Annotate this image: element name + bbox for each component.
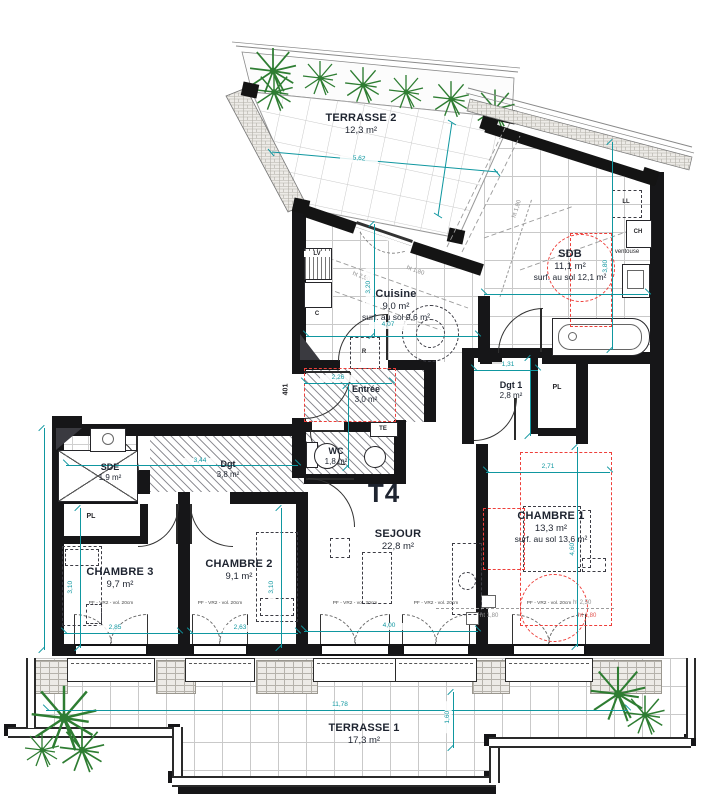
room-name: SEJOUR	[348, 528, 448, 541]
window-sill	[185, 658, 255, 682]
dim-line	[577, 447, 578, 647]
height-label: ht 1,80	[578, 613, 596, 619]
parapet-wall	[172, 727, 183, 783]
wall-dgt1-left	[462, 356, 474, 444]
room-area: 3,8 m²	[204, 470, 252, 479]
dim-line	[486, 472, 610, 473]
room-name: CHAMBRE 1	[503, 510, 599, 523]
sejour-furniture	[362, 552, 392, 604]
window-chambre2: PF - VR2 - vol. 20cm	[192, 598, 248, 682]
dim-chambre2-width: 2,63	[224, 625, 256, 632]
kitchen-cabinet	[304, 282, 332, 308]
c-label: C	[304, 311, 330, 317]
window-sill	[395, 658, 477, 682]
wall-segment	[52, 416, 82, 424]
wall-sde-right	[138, 470, 150, 494]
table-chambre3	[86, 604, 102, 624]
apartment-number-label: 401	[283, 376, 290, 404]
plant-icon	[22, 676, 122, 786]
room-label-dgt: Dgt 3,8 m²	[204, 459, 252, 479]
room-area: 2,8 m²	[481, 391, 541, 400]
room-area: 12,3 m²	[301, 125, 421, 136]
plant-icon	[580, 660, 676, 750]
room-area: 9,1 m²	[191, 571, 287, 582]
wall-entree-right	[424, 360, 436, 422]
wall-segment	[538, 428, 576, 436]
room-name: CHAMBRE 3	[72, 566, 168, 579]
dishwasher-label: LV	[304, 251, 330, 257]
room-name: TERRASSE 2	[301, 112, 421, 125]
window-label: PF - VR2 - vol. 20cm	[186, 601, 253, 606]
room-area: 1,8 m²	[312, 457, 360, 466]
chambre3-door-arc	[138, 504, 179, 547]
room-label-chambre2: CHAMBRE 2 9,1 m²	[191, 558, 287, 582]
wall-segment	[178, 492, 190, 504]
wall-bottom	[52, 644, 74, 656]
wall-bottom	[470, 644, 512, 656]
dim-sejour-width: 4,00	[371, 623, 407, 630]
room-label-sdb: SDB 11,1 m² surf. au sol 12,1 m²	[510, 248, 630, 282]
room-name: CHAMBRE 2	[191, 558, 287, 571]
window-swing-icon	[320, 614, 356, 645]
radiator-mark	[481, 595, 496, 608]
room-label-chambre3: CHAMBRE 3 9,7 m²	[72, 566, 168, 590]
room-area: 13,3 m²	[503, 523, 599, 534]
room-floor-area: surf. au sol 13,6 m²	[503, 534, 599, 544]
dim-line	[306, 336, 478, 337]
dgt1-door-arc	[474, 398, 517, 441]
window-swing-icon	[402, 614, 437, 645]
dim-line	[46, 710, 628, 711]
room-area: 1,9 m²	[86, 473, 134, 482]
window-swing-icon	[354, 614, 390, 645]
dim-chambre1-width: 2,71	[532, 464, 564, 471]
room-name: SDE	[86, 462, 134, 473]
closet-label-dgt1: PL	[544, 384, 570, 391]
window-frame	[402, 644, 470, 656]
wall-pl2-right	[576, 356, 588, 444]
stone-pier	[256, 660, 318, 694]
dim-terrasse1-length: 11,78	[320, 702, 360, 709]
unit-type-label: T4	[346, 478, 422, 509]
dim-line	[484, 294, 648, 295]
window-frame	[320, 644, 390, 656]
parapet-wall	[172, 776, 496, 787]
window-sill	[313, 658, 397, 682]
height-label: ht 1,80	[480, 613, 498, 619]
window-swing-icon	[435, 614, 470, 645]
wall-sde-right	[138, 424, 150, 436]
room-name: Dgt	[204, 459, 252, 470]
room-area: 3,0 m²	[330, 395, 402, 404]
room-label-sejour: SEJOUR 22,8 m²	[348, 528, 448, 552]
room-area: 22,8 m²	[348, 541, 448, 552]
room-label-terrasse2: TERRASSE 2 12,3 m²	[301, 112, 421, 136]
fridge-label: R	[350, 349, 378, 355]
dim-cuisine-width: 4,07	[369, 322, 407, 329]
dim-entree-width: 2,26	[320, 375, 356, 382]
room-area: 17,3 m²	[304, 735, 424, 746]
floor-plan: PF - VR2 - vol. 20cm PF - VR2 - vol. 20c…	[0, 0, 718, 800]
room-label-terrasse1: TERRASSE 1 17,3 m²	[304, 722, 424, 746]
window-frame	[74, 644, 148, 656]
room-floor-area: surf. au sol 12,1 m²	[510, 272, 630, 282]
boiler-label: CH	[626, 229, 650, 235]
room-name: Cuisine	[336, 288, 456, 301]
dim-chambre3-width: 2,85	[99, 625, 131, 632]
window-frame	[192, 644, 248, 656]
wc-basin-icon	[364, 446, 386, 468]
wall-pl-bottom	[52, 536, 148, 544]
room-label-dgt1: Dgt 1 2,8 m²	[481, 380, 541, 400]
dim-line	[304, 631, 478, 632]
room-label-entree: Entrée 3,0 m²	[330, 384, 402, 404]
room-name: WC	[312, 446, 360, 457]
sejour-furniture-round	[458, 572, 476, 590]
room-label-cuisine: Cuisine 9,0 m² surf. au sol 9,6 m²	[336, 288, 456, 322]
window-swing-icon	[192, 614, 221, 645]
room-name: Entrée	[330, 384, 402, 395]
chambre2-door-arc	[190, 504, 233, 547]
pillow-chambre3	[65, 549, 99, 566]
room-label-wc: WC 1,8 m²	[312, 446, 360, 466]
window-sill	[505, 658, 593, 682]
height-label: ht 2,50	[573, 600, 591, 606]
room-area: 9,7 m²	[72, 579, 168, 590]
dim-dgt1-width: 1,31	[492, 362, 524, 369]
te-label: TE	[370, 426, 396, 432]
sejour-furniture	[330, 538, 350, 558]
dim-line	[453, 692, 454, 748]
room-floor-area: surf. au sol 9,6 m²	[336, 312, 456, 322]
window-sill	[67, 658, 155, 682]
wall-bottom	[248, 644, 320, 656]
room-name: TERRASSE 1	[304, 722, 424, 735]
dim-line	[612, 142, 613, 350]
room-name: Dgt 1	[481, 380, 541, 391]
room-name: SDB	[510, 248, 630, 261]
sde-washbasin-bowl	[102, 433, 114, 445]
kitchen-table-inner	[416, 319, 445, 348]
room-area: 11,1 m²	[510, 261, 630, 272]
wall-bottom	[148, 644, 192, 656]
wall-segment	[230, 492, 308, 504]
washing-machine-label: LL	[612, 199, 640, 205]
wall-bottom	[586, 644, 664, 656]
bathtub-drain	[568, 332, 577, 341]
closet-label-sde: PL	[78, 513, 104, 520]
room-area: 9,0 m²	[336, 301, 456, 312]
parapet-wall	[686, 658, 696, 738]
wall-bottom	[390, 644, 402, 656]
dim-line	[474, 370, 538, 371]
room-label-sde: SDE 1,9 m²	[86, 462, 134, 482]
pillow-chambre2	[260, 598, 294, 616]
window-sejour-1: PF - VR2 - vol. 20cm	[320, 598, 390, 682]
dim-line	[64, 633, 180, 634]
room-label-chambre1: CHAMBRE 1 13,3 m² surf. au sol 13,6 m²	[503, 510, 599, 544]
dim-terrasse1-depth: 1,60	[445, 701, 452, 733]
dim-line	[44, 428, 45, 650]
